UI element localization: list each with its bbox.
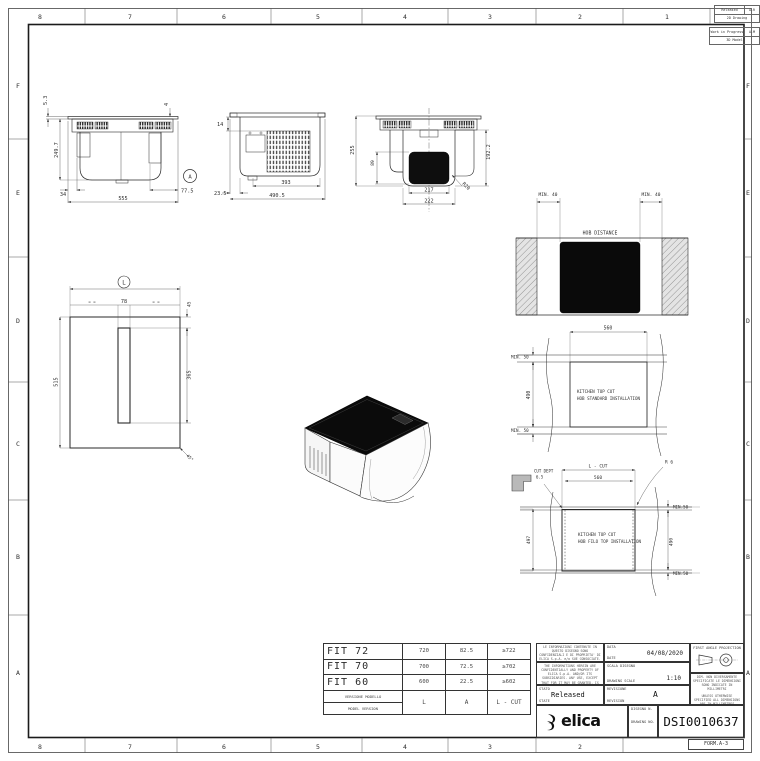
zone-col: 7	[128, 13, 132, 21]
model-a: 82.5	[446, 644, 488, 660]
state-cell: STATO STATE Released	[536, 685, 604, 705]
dim-side-gap: 14	[217, 122, 223, 128]
hob-distance-view: MIN. 40 MIN. 40 HOB DISTANCE	[516, 192, 688, 315]
zone-col: 4	[403, 743, 407, 751]
dim-min-top: MIN. 50	[511, 355, 529, 360]
zone-row: E	[16, 189, 20, 197]
zone-row: D	[16, 317, 20, 325]
zone-row: F	[16, 82, 20, 90]
model-a: 22.5	[446, 675, 488, 691]
zone-col: 8	[38, 743, 42, 751]
dim-duct-radius: R20	[461, 181, 471, 191]
table-row: FIT 70 700 72.5 ≥702	[324, 659, 531, 675]
scale-label-it: SCALA DISEGNO	[607, 664, 635, 668]
cut-depth-value: 6.5	[536, 475, 544, 480]
zone-col: 4	[403, 13, 407, 21]
dim-min-bottom: MIN. 50	[511, 428, 529, 433]
filo-cut-view: L - CUT 560 CUT DEPT 6.5 R 6 MIN.50 MIN.…	[512, 460, 700, 597]
units-note-en: UNLESS OTHERWISE SPECIFIED ALL DIMENSION…	[691, 693, 743, 705]
scale-label-en: DRAWING SCALE	[607, 679, 635, 683]
dim-filo-min-bottom: MIN.50	[673, 571, 689, 576]
zone-row: F	[746, 82, 750, 90]
dim-min-left: MIN. 40	[539, 192, 558, 198]
dim-outlet-height: 89	[370, 160, 376, 166]
date-value: 04/08/2020	[647, 650, 683, 657]
scale-cell: SCALA DISEGNO DRAWING SCALE 1:10	[604, 662, 690, 685]
table-row: FIT 72 720 82.5 ≥722	[324, 644, 531, 660]
dim-offset-left: 34	[60, 192, 66, 198]
confidential-note-en: THE INFORMATIONS HEREIN ARE CONFIDENTIAL…	[536, 662, 604, 685]
filo-cut-label-1: KITCHEN TOP CUT	[578, 532, 616, 537]
dim-corner-radius: R 6	[665, 460, 673, 466]
date-label-en: DATE	[607, 656, 616, 660]
fit-model-table: FIT 72 720 82.5 ≥722 FIT 70 700 72.5 ≥70…	[323, 643, 531, 715]
equal-mark: = =	[88, 300, 96, 305]
dim-body-width: 490.5	[269, 193, 285, 199]
projection-cell: FIRST ANGLE PROJECTION	[690, 643, 744, 673]
dim-grille-width: 393	[281, 180, 290, 186]
isometric-view	[305, 396, 431, 503]
dim-front-width: 555	[118, 196, 127, 202]
fit-table: FIT 72 720 82.5 ≥722 FIT 70 700 72.5 ≥70…	[323, 643, 531, 715]
units-note-it: DIM. NON DIVERSAMENTE SPECIFICATE LE DIM…	[691, 674, 743, 693]
drawing-number: DSI0010637	[663, 714, 738, 729]
status-3d-state: Work in Progress	[710, 28, 745, 37]
dim-body-height: 192.2	[486, 144, 492, 160]
filo-cut-label-2: HOB FILO TOP INSTALLATION	[578, 539, 642, 544]
model-name: FIT 60	[324, 675, 403, 691]
model-l: 720	[403, 644, 446, 660]
model-lcut: ≥722	[488, 644, 531, 660]
zone-row: B	[746, 553, 750, 561]
zone-col: 5	[316, 743, 320, 751]
projection-label: FIRST ANGLE PROJECTION	[691, 646, 743, 650]
revision-label-en: REVISION	[607, 699, 624, 703]
dim-outlet-width: 217	[424, 188, 433, 194]
state-value: Released	[551, 691, 585, 699]
plan-view: L 78 = = = = 45 515 365 45°	[54, 276, 195, 463]
standard-cut-label-2: HOB STANDARD INSTALLATION	[577, 396, 641, 401]
drawing-no-label-en: DRAWING NO.	[631, 720, 655, 724]
zone-row: E	[746, 189, 750, 197]
zone-row: A	[746, 669, 750, 677]
table-row: FIT 60 600 22.5 ≥602	[324, 675, 531, 691]
model-name: FIT 70	[324, 659, 403, 675]
brand-cell: elica	[536, 705, 628, 738]
zone-col: 6	[222, 743, 226, 751]
duct-view: 255 192.2 89 217 222 R20	[350, 108, 492, 212]
version-label-en: MODEL VERSION	[324, 702, 403, 714]
zone-row: A	[16, 669, 20, 677]
confidential-note-it: LE INFORMAZIONI CONTENUTE IN QUESTO DISE…	[536, 643, 604, 662]
dim-offset-right: 77.5	[181, 189, 194, 195]
standard-cut-label-1: KITCHEN TOP CUT	[577, 389, 615, 394]
table-footer-row: VERSIONE MODELLO L A L - CUT	[324, 690, 531, 702]
dim-slot-length: 365	[187, 370, 193, 379]
model-lcut: ≥602	[488, 675, 531, 691]
revision-label-it: REVISIONE	[607, 687, 626, 691]
first-angle-projection-icon	[695, 652, 739, 668]
zone-col: 2	[578, 743, 582, 751]
form-number: FORM.A-3	[688, 739, 744, 750]
state-label-en: STATE	[539, 699, 550, 703]
dim-front-height: 249.7	[54, 142, 60, 158]
zone-col: 8	[38, 13, 42, 21]
model-lcut: ≥702	[488, 659, 531, 675]
dim-side-offset: 23.5	[214, 191, 227, 197]
dim-filo-min-top: MIN.50	[673, 505, 689, 510]
zone-row: D	[746, 317, 750, 325]
status-3d-code: A-M	[745, 28, 760, 37]
dim-min-right: MIN. 40	[642, 192, 661, 198]
model-name: FIT 72	[324, 644, 403, 660]
elica-logo-mark	[545, 712, 559, 732]
model-l: 600	[403, 675, 446, 691]
drawing-sheet: 8 7 6 5 4 3 2 1 8 7 6 5 4 3 2 F E D C B …	[0, 0, 760, 761]
footer-lcut: L - CUT	[488, 690, 531, 714]
front-view: 5.3 249.7 34 555 77.5 4 A	[43, 96, 197, 203]
version-label-it: VERSIONE MODELLO	[324, 690, 403, 702]
zone-col: 5	[316, 13, 320, 21]
zone-col: 3	[488, 13, 492, 21]
zone-col: 3	[488, 743, 492, 751]
dim-lcut-ref: L - CUT	[589, 464, 608, 470]
drawing-number-cell: DSI0010637	[658, 705, 744, 738]
units-note-cell: DIM. NON DIVERSAMENTE SPECIFICATE LE DIM…	[690, 673, 744, 705]
status-2d-code: A-R	[745, 6, 760, 15]
footer-a: A	[446, 690, 488, 714]
dim-slot-width: 78	[121, 299, 127, 305]
standard-cut-view: 560 MIN. 50 MIN. 50 490 KITCHEN TOP CUT …	[511, 326, 667, 457]
zone-row: C	[746, 440, 750, 448]
dim-filo-width: 560	[594, 475, 602, 481]
status-2d-state: Released	[715, 6, 745, 15]
dim-plan-width-ref: L	[122, 280, 126, 286]
model-l: 700	[403, 659, 446, 675]
zone-col: 6	[222, 13, 226, 21]
dim-filo-outer-height: 497	[526, 536, 532, 545]
dim-plan-height: 515	[54, 377, 60, 386]
status-table-3d: Work in Progress A-M 3D Model	[709, 27, 760, 45]
dim-cut-width: 560	[604, 326, 613, 332]
dim-corner-angle: 45°	[185, 453, 195, 463]
drawing-no-label-it: DISEGNO N.	[631, 707, 653, 711]
model-a: 72.5	[446, 659, 488, 675]
dim-duct-width: 222	[424, 199, 433, 205]
dim-cut-height: 490	[526, 391, 532, 400]
detail-callout-a: A	[188, 174, 192, 180]
revision-value: A	[653, 690, 658, 699]
date-label-it: DATA	[607, 645, 616, 649]
dim-filo-height: 490	[669, 538, 675, 547]
dim-duct-height: 255	[350, 145, 356, 154]
dim-glass-thickness: 5.3	[43, 96, 49, 105]
state-label-it: STATO	[539, 687, 550, 691]
zone-col: 2	[578, 13, 582, 21]
revision-cell: REVISIONE REVISION A	[604, 685, 690, 705]
cut-depth-label: CUT DEPT	[534, 469, 554, 474]
date-cell: DATA DATE 04/08/2020	[604, 643, 690, 662]
zone-col: 1	[665, 13, 669, 21]
equal-mark: = =	[152, 300, 160, 305]
dim-slot-offset: 45	[187, 301, 193, 307]
status-table-2d: Released A-R 2D Drawing	[714, 5, 760, 23]
dim-trim: 4	[164, 103, 170, 106]
footer-l: L	[403, 690, 446, 714]
drawing-no-label-cell: DISEGNO N. DRAWING NO.	[628, 705, 658, 738]
zone-row: C	[16, 440, 20, 448]
status-3d-scope: 3D Model	[710, 36, 760, 45]
zone-col: 7	[128, 743, 132, 751]
hob-distance-label: HOB DISTANCE	[583, 231, 618, 237]
side-view: 14 23.5 393 490.5	[214, 113, 325, 200]
status-2d-scope: 2D Drawing	[715, 14, 760, 23]
title-block: LE INFORMAZIONI CONTENUTE IN QUESTO DISE…	[536, 643, 744, 738]
scale-value: 1:10	[667, 675, 681, 682]
brand-name: elica	[561, 711, 601, 730]
zone-row: B	[16, 553, 20, 561]
